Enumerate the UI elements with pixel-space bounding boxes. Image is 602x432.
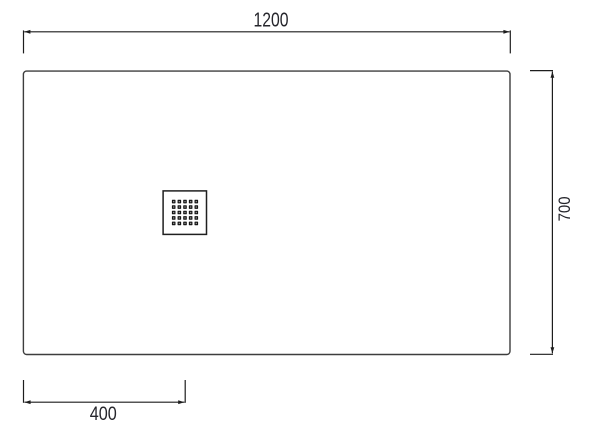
svg-text:1200: 1200 bbox=[254, 9, 289, 32]
svg-text:400: 400 bbox=[90, 403, 117, 425]
svg-text:700: 700 bbox=[555, 196, 574, 221]
